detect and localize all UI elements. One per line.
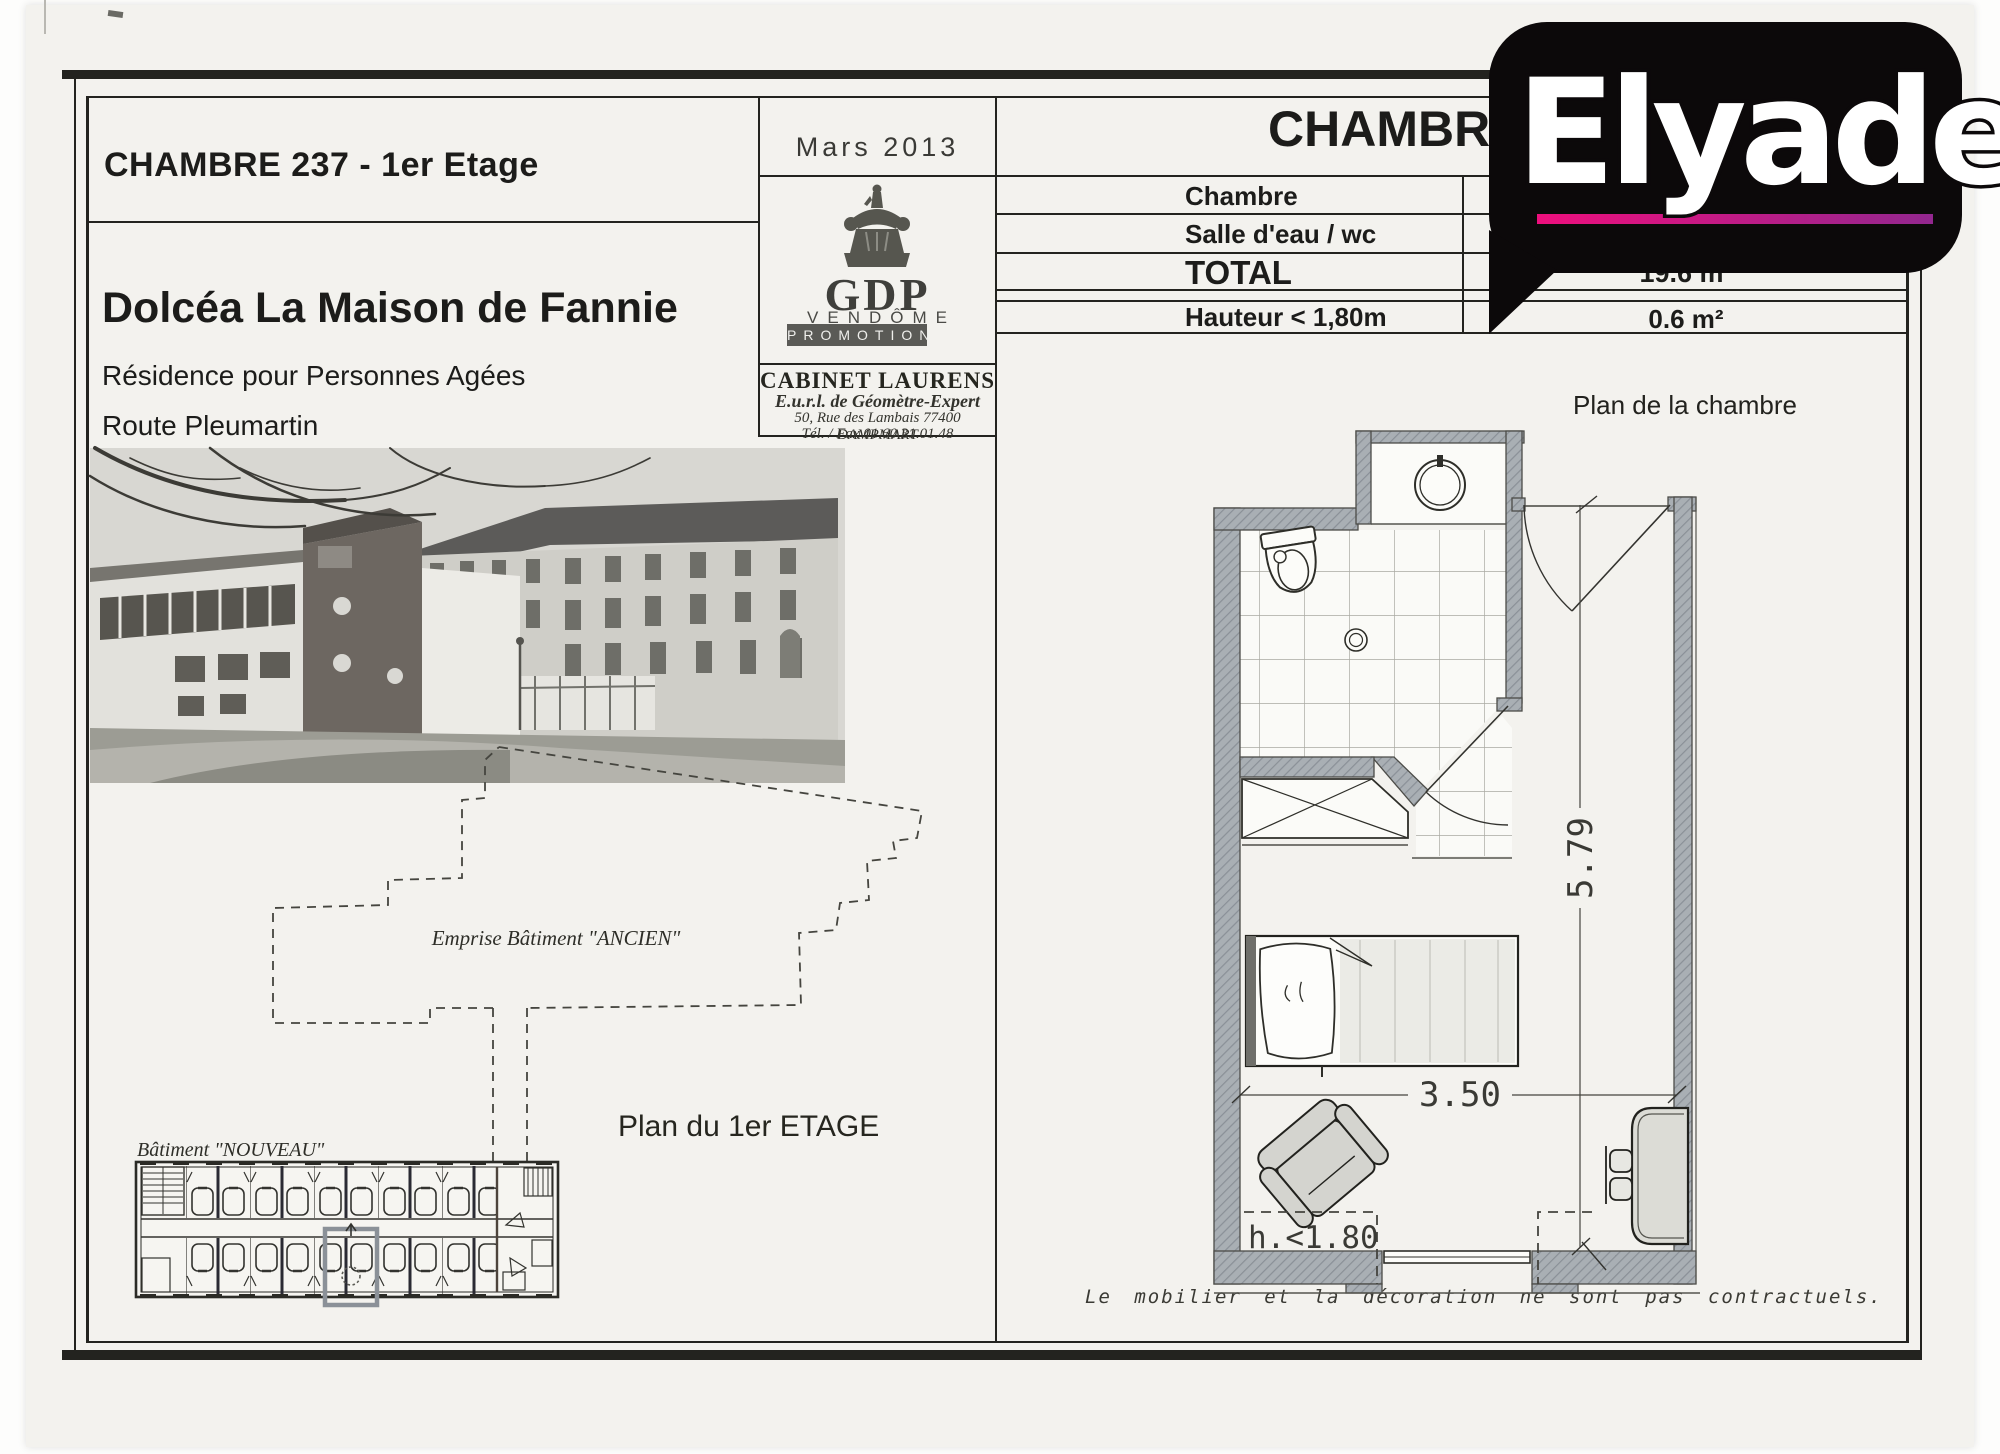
building-photo	[90, 448, 845, 783]
nouveau-plan	[136, 1162, 558, 1305]
nouveau-label: Bâtiment "NOUVEAU"	[137, 1139, 325, 1161]
dim-room-width: 3.50	[1419, 1075, 1501, 1115]
low-ceiling-label: h.<1.80	[1248, 1220, 1379, 1256]
room-floor-plan: 5.79 3.50 h.<1.80	[1214, 431, 1700, 1293]
ancien-label: Emprise Bâtiment "ANCIEN"	[431, 926, 681, 950]
elyade-logo-text: Elyade	[1516, 60, 2000, 206]
elyade-logo-tail	[1488, 230, 1560, 336]
dim-room-length: 5.79	[1561, 817, 1601, 899]
ancien-outline	[273, 747, 922, 1162]
